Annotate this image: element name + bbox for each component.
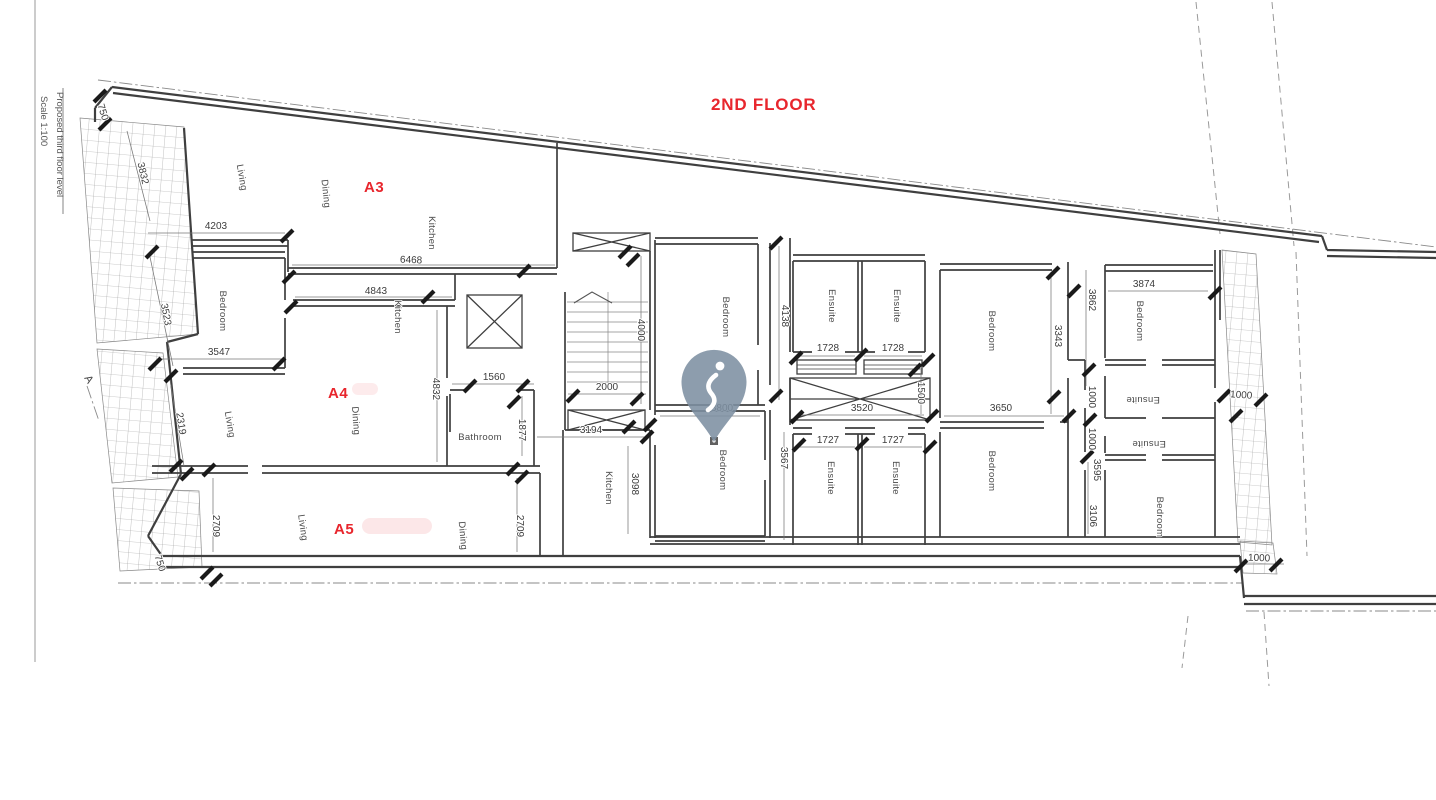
room-label-a3-kitchen: Kitchen bbox=[426, 216, 437, 250]
dim-3567: 3567 bbox=[778, 447, 789, 470]
sheet-margin: Proposed third floor level Scale 1:100 bbox=[35, 0, 65, 662]
dim-3106: 3106 bbox=[1087, 505, 1098, 528]
highlight-smears bbox=[352, 383, 432, 534]
room-label-ensuite-bottom-left: Ensuite bbox=[825, 461, 836, 495]
dim-3874: 3874 bbox=[1133, 279, 1156, 290]
dim-1000-terrace-lower: 1000 bbox=[1248, 553, 1271, 565]
dim-1727-left: 1727 bbox=[817, 435, 840, 446]
room-label-a3-living: Living bbox=[234, 164, 249, 192]
room-label-a5-dining: Dining bbox=[456, 521, 469, 551]
scale-note: Scale 1:100 bbox=[38, 96, 49, 146]
room-label-far-ensuite-bottom: Ensuite bbox=[1132, 438, 1166, 449]
page-title: 2ND FLOOR bbox=[711, 95, 816, 114]
room-labels: Living Dining Kitchen Bedroom Kitchen Li… bbox=[217, 164, 1166, 551]
dim-4203: 4203 bbox=[205, 221, 228, 232]
room-label-ensuite-bottom-right: Ensuite bbox=[890, 461, 901, 495]
floor-plan-drawing: Proposed third floor level Scale 1:100 bbox=[0, 0, 1436, 800]
unit-label-a4: A4 bbox=[328, 385, 348, 402]
room-label-center-bedroom-bottom: Bedroom bbox=[717, 450, 728, 491]
dim-3520: 3520 bbox=[851, 403, 874, 414]
room-label-center-bedroom-top: Bedroom bbox=[720, 297, 731, 338]
dim-3595: 3595 bbox=[1091, 459, 1102, 482]
dim-1727-right: 1727 bbox=[882, 435, 905, 446]
room-label-a4-bedroom: Bedroom bbox=[217, 291, 228, 332]
location-pin[interactable] bbox=[681, 350, 746, 445]
dim-3862: 3862 bbox=[1086, 289, 1097, 312]
dim-3650: 3650 bbox=[990, 403, 1013, 414]
dimension-lines bbox=[127, 131, 1284, 564]
dim-6468: 6468 bbox=[400, 255, 423, 267]
room-label-a5-living: Living bbox=[295, 514, 310, 542]
dim-1500: 1500 bbox=[915, 382, 926, 405]
unit-label-a3: A3 bbox=[364, 179, 384, 196]
dim-2709-right: 2709 bbox=[514, 515, 525, 538]
dim-3343: 3343 bbox=[1052, 325, 1063, 348]
room-label-a4-bathroom: Bathroom bbox=[458, 432, 502, 443]
room-label-ensuite-top-right: Ensuite bbox=[891, 289, 902, 323]
dim-2319: 2319 bbox=[173, 412, 187, 436]
dim-1728-right: 1728 bbox=[882, 343, 905, 354]
dim-1728-left: 1728 bbox=[817, 343, 840, 354]
room-label-far-bedroom-top: Bedroom bbox=[1134, 301, 1145, 342]
dim-1000-corridor-upper: 1000 bbox=[1086, 386, 1097, 409]
unit-label-a5: A5 bbox=[334, 521, 354, 538]
section-marker: A bbox=[81, 373, 95, 386]
room-label-far-ensuite-top: Ensuite bbox=[1126, 394, 1160, 405]
dim-4000: 4000 bbox=[635, 319, 646, 342]
margin-note: Proposed third floor level bbox=[54, 92, 65, 197]
dim-3098: 3098 bbox=[629, 473, 640, 496]
room-label-right-bedroom-top: Bedroom bbox=[986, 311, 997, 352]
dim-1877: 1877 bbox=[516, 419, 527, 442]
room-label-ensuite-top-left: Ensuite bbox=[826, 289, 837, 323]
room-label-right-bedroom-bottom: Bedroom bbox=[986, 451, 997, 492]
dimension-labels: 750 3832 4203 6468 4843 3523 3547 2319 2… bbox=[95, 103, 1271, 574]
dim-4138: 4138 bbox=[779, 305, 790, 328]
dim-4832: 4832 bbox=[430, 378, 441, 401]
room-label-a3-dining: Dining bbox=[319, 179, 333, 209]
dim-1000-corridor-lower: 1000 bbox=[1086, 428, 1097, 451]
room-label-a4-dining: Dining bbox=[349, 406, 362, 435]
dim-3194: 3194 bbox=[580, 425, 603, 436]
room-label-a4-kitchen: Kitchen bbox=[392, 300, 403, 334]
dim-1560: 1560 bbox=[483, 372, 506, 383]
room-label-a4-living: Living bbox=[222, 411, 237, 439]
room-label-mid-kitchen: Kitchen bbox=[603, 471, 614, 505]
room-label-far-bedroom-bottom: Bedroom bbox=[1154, 497, 1165, 538]
dim-3547: 3547 bbox=[208, 347, 231, 358]
floor-plan-page: Proposed third floor level Scale 1:100 bbox=[0, 0, 1436, 800]
dim-2709-left: 2709 bbox=[210, 515, 221, 538]
dim-2000: 2000 bbox=[596, 382, 619, 393]
dim-1000-terrace-upper: 1000 bbox=[1230, 389, 1253, 402]
dim-4843: 4843 bbox=[365, 286, 388, 297]
